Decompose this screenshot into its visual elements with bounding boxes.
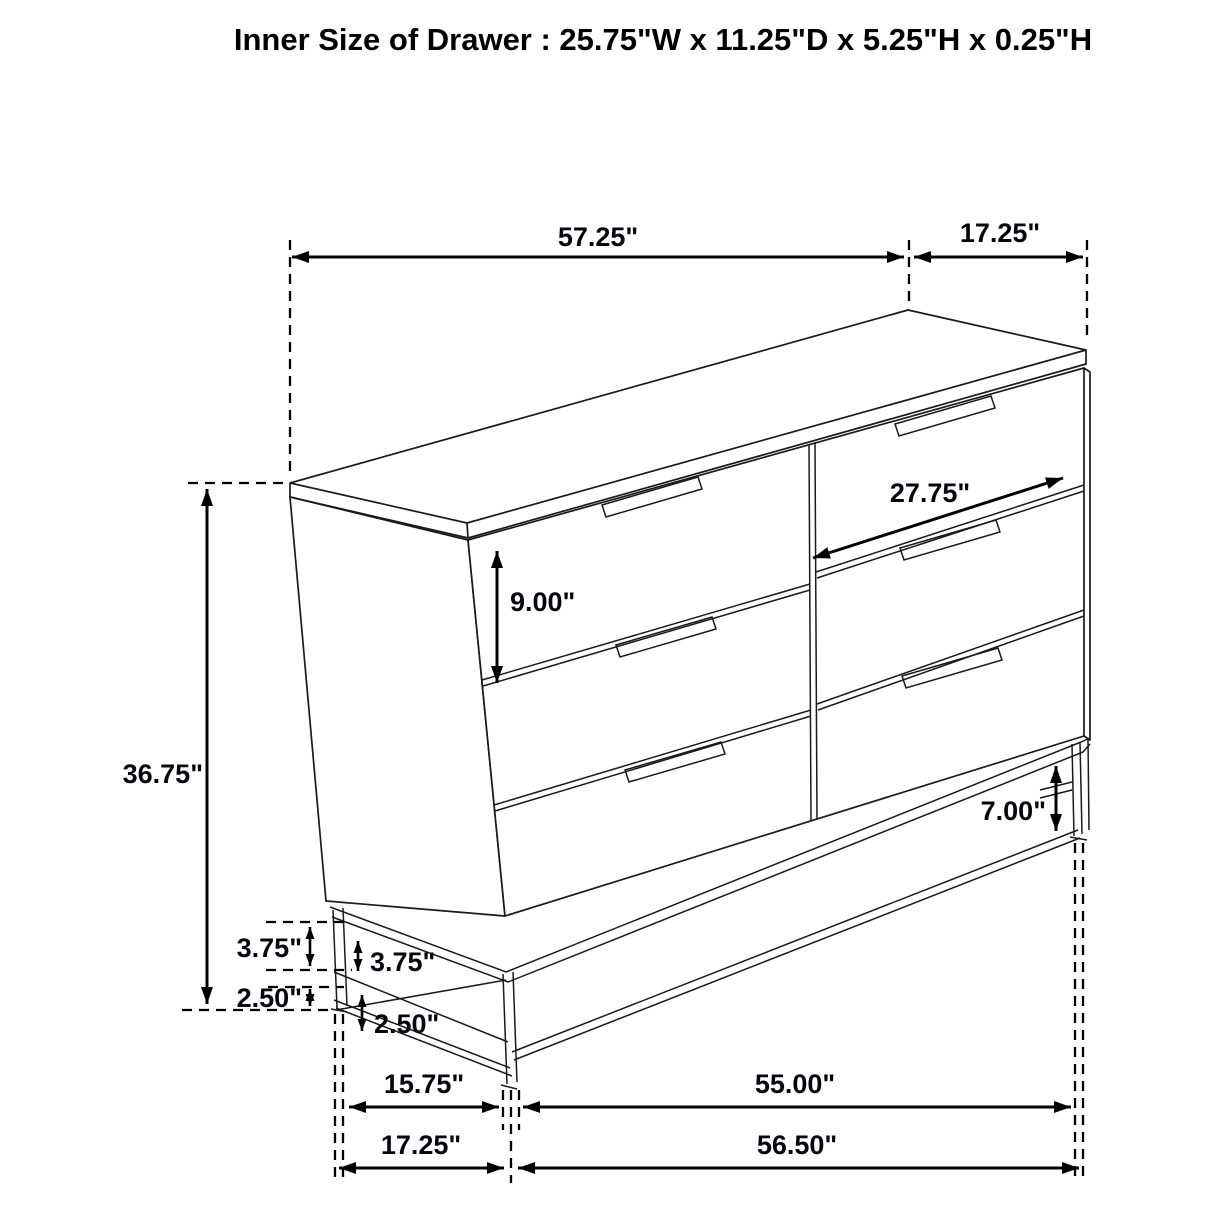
label-drawer-height: 9.00" bbox=[510, 587, 575, 617]
label-drawer-width: 27.75" bbox=[890, 478, 970, 508]
label-base-upper-inner: 3.75" bbox=[370, 947, 435, 977]
label-bottom-width-inner: 55.00" bbox=[755, 1069, 835, 1099]
label-overall-height: 36.75" bbox=[123, 759, 203, 789]
label-base-lower-outer: 2.50" bbox=[237, 983, 302, 1013]
dresser-dimension-diagram: 57.25" 17.25" 36.75" 9.00" 27.75" 7.00" … bbox=[0, 0, 1214, 1214]
label-bottom-depth-outer: 17.25" bbox=[381, 1130, 461, 1160]
diagram-canvas: Inner Size of Drawer : 25.75"W x 11.25"D… bbox=[0, 0, 1214, 1214]
label-base-clearance: 7.00" bbox=[981, 796, 1046, 826]
label-bottom-depth-inner: 15.75" bbox=[384, 1069, 464, 1099]
label-base-lower-inner: 2.50" bbox=[374, 1009, 439, 1039]
label-top-width: 57.25" bbox=[558, 222, 638, 252]
label-base-upper-outer: 3.75" bbox=[237, 933, 302, 963]
label-top-depth: 17.25" bbox=[960, 218, 1040, 248]
label-bottom-width-outer: 56.50" bbox=[757, 1130, 837, 1160]
dresser-right-edge bbox=[1084, 368, 1090, 740]
